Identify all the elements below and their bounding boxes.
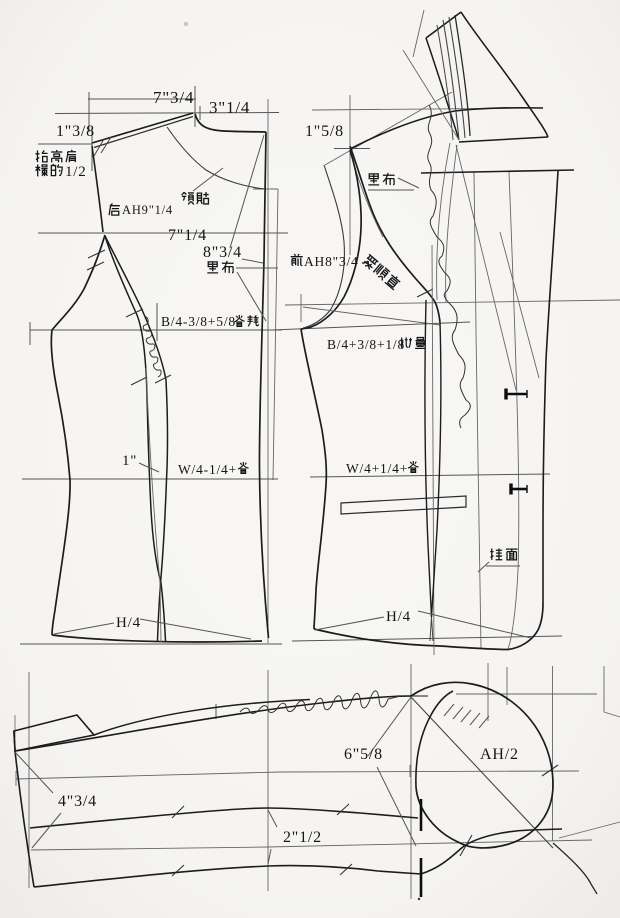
svg-text:7"1/4: 7"1/4	[168, 227, 207, 244]
svg-text:H/4: H/4	[386, 609, 411, 625]
svg-text:AH9"1/4: AH9"1/4	[122, 203, 173, 217]
svg-text:B/4+3/8+1/8: B/4+3/8+1/8	[327, 337, 405, 352]
svg-text:3"1/4: 3"1/4	[209, 98, 250, 117]
svg-text:1"3/8: 1"3/8	[56, 123, 95, 140]
svg-text:8"3/4: 8"3/4	[203, 244, 242, 261]
svg-text:AH/2: AH/2	[480, 746, 519, 763]
svg-text:W/4+1/4+: W/4+1/4+	[346, 461, 408, 476]
svg-text:H/4: H/4	[116, 615, 141, 631]
svg-text:W/4-1/4+: W/4-1/4+	[178, 462, 237, 477]
svg-text:1"5/8: 1"5/8	[305, 123, 344, 140]
svg-text:B/4-3/8+5/8: B/4-3/8+5/8	[161, 314, 236, 329]
svg-text:AH8"3/4: AH8"3/4	[304, 254, 359, 269]
svg-text:1/2: 1/2	[65, 164, 87, 180]
svg-text:2"1/2: 2"1/2	[283, 829, 322, 846]
svg-text:7"3/4: 7"3/4	[153, 88, 194, 107]
svg-text:4"3/4: 4"3/4	[58, 793, 97, 810]
svg-text:1": 1"	[122, 453, 137, 469]
svg-text:6"5/8: 6"5/8	[344, 746, 383, 763]
